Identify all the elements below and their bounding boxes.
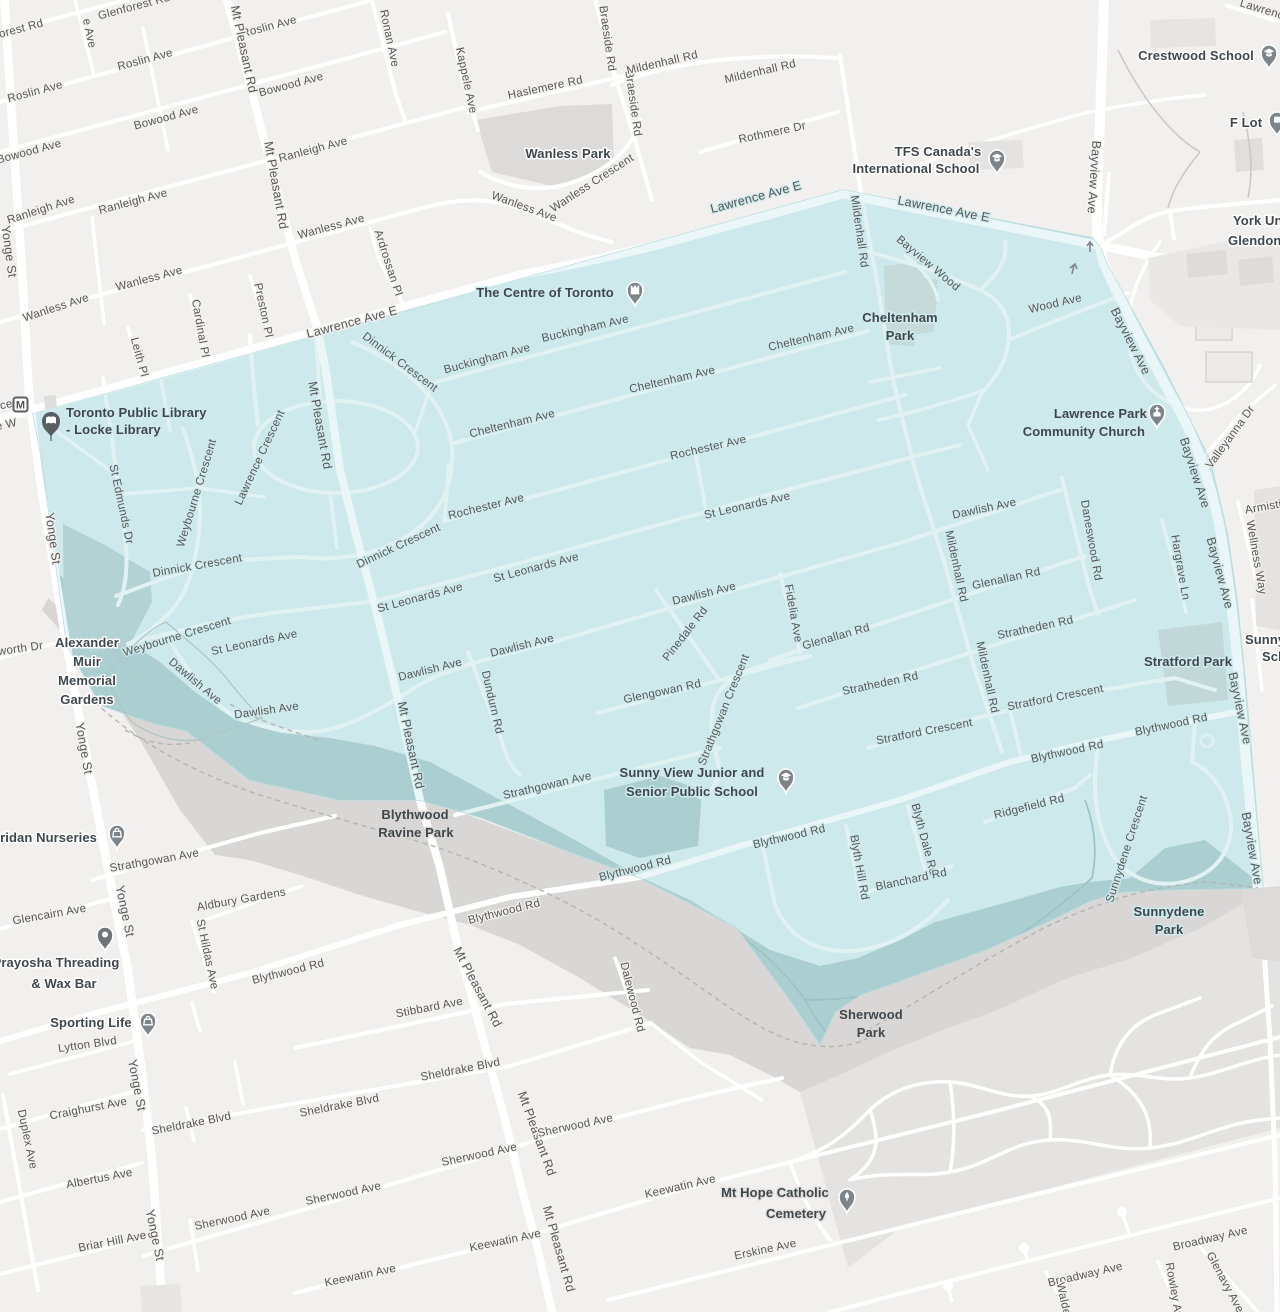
svg-text:Ravine Park: Ravine Park <box>378 825 454 840</box>
svg-text:Blythwood: Blythwood <box>381 807 448 822</box>
svg-text:Sunny View Junior and: Sunny View Junior and <box>620 765 765 780</box>
svg-text:Wanless Park: Wanless Park <box>525 146 611 161</box>
svg-text:Sheridan Nurseries: Sheridan Nurseries <box>0 830 97 845</box>
svg-text:Alexander: Alexander <box>55 635 119 650</box>
svg-text:Sporting Life: Sporting Life <box>50 1015 131 1030</box>
svg-text:Memorial: Memorial <box>58 673 116 688</box>
svg-text:& Wax Bar: & Wax Bar <box>31 976 96 991</box>
svg-text:Prayosha Threading: Prayosha Threading <box>0 955 119 970</box>
svg-text:M: M <box>16 400 25 412</box>
svg-text:Scho: Scho <box>1262 649 1280 664</box>
svg-text:F Lot: F Lot <box>1230 115 1263 130</box>
svg-text:Lawrence Park: Lawrence Park <box>1054 406 1148 421</box>
svg-text:Sunnydene: Sunnydene <box>1134 904 1205 919</box>
svg-text:Cheltenham: Cheltenham <box>862 310 937 325</box>
svg-text:TFS Canada's: TFS Canada's <box>895 144 982 159</box>
svg-text:Crestwood School: Crestwood School <box>1138 48 1254 63</box>
svg-text:Park: Park <box>1155 922 1184 937</box>
svg-text:Community Church: Community Church <box>1023 424 1145 439</box>
svg-text:International School: International School <box>853 161 980 176</box>
svg-text:The Centre of Toronto: The Centre of Toronto <box>476 285 614 300</box>
svg-text:Park: Park <box>886 328 915 343</box>
svg-text:Stratford Park: Stratford Park <box>1144 654 1233 669</box>
svg-text:Mt Hope Catholic: Mt Hope Catholic <box>721 1185 829 1200</box>
svg-text:Glendon C: Glendon C <box>1228 233 1280 248</box>
svg-text:Sherwood: Sherwood <box>839 1007 903 1022</box>
svg-text:Sunnybro: Sunnybro <box>1245 632 1280 647</box>
svg-text:Park: Park <box>857 1025 886 1040</box>
svg-text:Toronto Public Library: Toronto Public Library <box>66 405 207 420</box>
svg-text:York Univers: York Univers <box>1233 213 1280 228</box>
svg-text:- Locke Library: - Locke Library <box>66 422 161 437</box>
svg-text:Muir: Muir <box>73 654 101 669</box>
svg-text:Gardens: Gardens <box>60 692 113 707</box>
svg-text:Senior Public School: Senior Public School <box>626 784 758 799</box>
svg-text:Cemetery: Cemetery <box>766 1206 827 1221</box>
